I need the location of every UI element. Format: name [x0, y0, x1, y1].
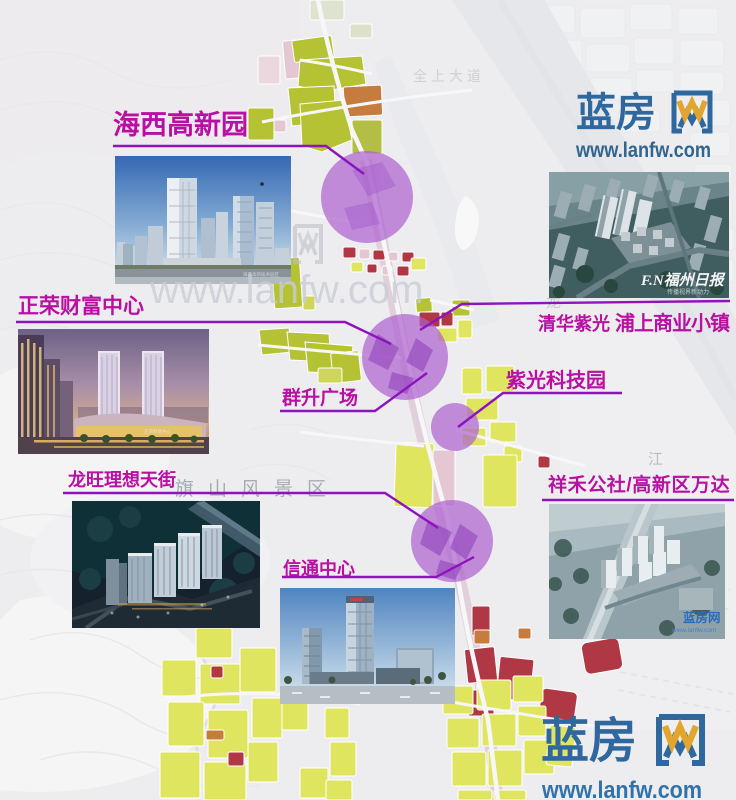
svg-text:正荣财富中心: 正荣财富中心 — [144, 428, 171, 435]
svg-text:www.lanfw.com: www.lanfw.com — [541, 777, 702, 800]
svg-text:蓝房网: 蓝房网 — [683, 610, 721, 625]
svg-text:江: 江 — [648, 451, 663, 468]
svg-text:旗山风景区: 旗山风景区 — [175, 478, 340, 500]
svg-text:蓝房: 蓝房 — [576, 91, 656, 135]
svg-text:www.lanfw.com: www.lanfw.com — [576, 139, 711, 162]
svg-text:全上大道: 全上大道 — [413, 68, 485, 84]
svg-text:传播视界新动力: 传播视界新动力 — [667, 288, 709, 296]
svg-text:www.lanfw.com: www.lanfw.com — [671, 627, 716, 634]
svg-text:F.N福州日报: F.N福州日报 — [640, 272, 726, 289]
svg-text:蓝房: 蓝房 — [541, 715, 637, 768]
